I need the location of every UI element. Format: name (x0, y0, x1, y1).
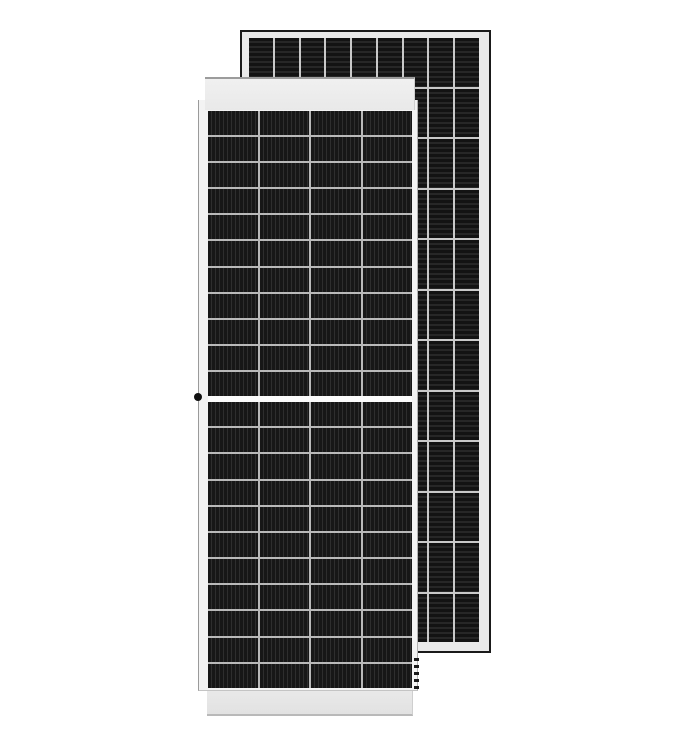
solar-cell (363, 268, 413, 292)
solar-cell (363, 664, 413, 688)
product-image-canvas (0, 0, 684, 748)
solar-cell (311, 215, 361, 239)
solar-cell (311, 402, 361, 426)
solar-cell (363, 215, 413, 239)
grounding-hole-dot (194, 393, 202, 401)
solar-cell (208, 346, 258, 370)
solar-cell (260, 402, 310, 426)
solar-cell (208, 638, 258, 662)
solar-cell (429, 442, 453, 491)
solar-cell (260, 163, 310, 187)
solar-cell (260, 585, 310, 609)
solar-cell (455, 341, 479, 390)
solar-cell (363, 507, 413, 531)
solar-cell (208, 163, 258, 187)
solar-cell (208, 402, 258, 426)
solar-cell (363, 372, 413, 396)
solar-cell (455, 442, 479, 491)
solar-cell (260, 372, 310, 396)
solar-cell (311, 481, 361, 505)
solar-cell (455, 543, 479, 592)
solar-cell (363, 428, 413, 452)
solar-cell (208, 320, 258, 344)
solar-cell (363, 241, 413, 265)
solar-cell (363, 111, 413, 135)
solar-cell (208, 507, 258, 531)
solar-cell (260, 507, 310, 531)
solar-cell (208, 585, 258, 609)
solar-cell (311, 163, 361, 187)
solar-cell (363, 163, 413, 187)
solar-cell (455, 190, 479, 239)
solar-cell (311, 454, 361, 478)
solar-cell (311, 559, 361, 583)
solar-cell (429, 89, 453, 138)
solar-cell (429, 240, 453, 289)
solar-cell (363, 294, 413, 318)
solar-cell (311, 664, 361, 688)
solar-cell (208, 268, 258, 292)
solar-cell (208, 481, 258, 505)
solar-cell (455, 38, 479, 87)
solar-cell (311, 320, 361, 344)
solar-cell (455, 594, 479, 643)
solar-cell (260, 268, 310, 292)
solar-cell (363, 585, 413, 609)
solar-cell (260, 664, 310, 688)
solar-cell (363, 611, 413, 635)
solar-cell (208, 111, 258, 135)
solar-cell (208, 215, 258, 239)
solar-cell (429, 291, 453, 340)
solar-cell (260, 428, 310, 452)
solar-cell (311, 428, 361, 452)
solar-cell (429, 38, 453, 87)
solar-cell (208, 533, 258, 557)
solar-cell (363, 402, 413, 426)
solar-cell (208, 611, 258, 635)
solar-cell (311, 372, 361, 396)
solar-cell (311, 611, 361, 635)
solar-cell (311, 294, 361, 318)
front-panel-bottom-cap (207, 691, 413, 716)
solar-cell (260, 111, 310, 135)
solar-cell (363, 481, 413, 505)
solar-cell (208, 559, 258, 583)
solar-cell (260, 611, 310, 635)
solar-cell (363, 346, 413, 370)
solar-cell (208, 137, 258, 161)
solar-cell (311, 137, 361, 161)
solar-cell (260, 241, 310, 265)
solar-cell (260, 346, 310, 370)
solar-cell (260, 189, 310, 213)
solar-cell (260, 215, 310, 239)
solar-cell (260, 481, 310, 505)
solar-cell (363, 320, 413, 344)
solar-cell (260, 320, 310, 344)
solar-cell (429, 594, 453, 643)
solar-cell (429, 190, 453, 239)
solar-cell (311, 241, 361, 265)
solar-cell (363, 454, 413, 478)
solar-cell (429, 392, 453, 441)
front-panel-top-cap (205, 77, 415, 110)
solar-cell (311, 585, 361, 609)
solar-cell (311, 507, 361, 531)
solar-cell (208, 372, 258, 396)
solar-cell (455, 139, 479, 188)
solar-cell (429, 543, 453, 592)
solar-cell (260, 559, 310, 583)
solar-cell (260, 294, 310, 318)
solar-cell (363, 137, 413, 161)
solar-cell (429, 341, 453, 390)
solar-cell (311, 346, 361, 370)
solar-cell (363, 189, 413, 213)
front-cell-grid-lower (208, 402, 412, 688)
solar-cell (429, 493, 453, 542)
frame-mounting-dashes (414, 658, 419, 692)
solar-cell (311, 533, 361, 557)
solar-cell (260, 454, 310, 478)
solar-cell (311, 638, 361, 662)
solar-cell (455, 493, 479, 542)
solar-cell (455, 392, 479, 441)
solar-cell (208, 294, 258, 318)
solar-cell (311, 189, 361, 213)
solar-cell (311, 268, 361, 292)
solar-cell (208, 664, 258, 688)
solar-cell (208, 241, 258, 265)
front-cell-grid-upper (208, 111, 412, 396)
solar-cell (260, 533, 310, 557)
solar-cell (311, 111, 361, 135)
solar-cell (363, 533, 413, 557)
front-panel-cell-area (208, 111, 412, 688)
solar-cell (455, 240, 479, 289)
solar-cell (208, 454, 258, 478)
solar-cell (363, 638, 413, 662)
solar-cell (260, 137, 310, 161)
solar-cell (455, 291, 479, 340)
solar-cell (208, 428, 258, 452)
solar-cell (208, 189, 258, 213)
solar-cell (455, 89, 479, 138)
solar-cell (260, 638, 310, 662)
solar-cell (429, 139, 453, 188)
solar-cell (363, 559, 413, 583)
front-solar-panel-body (198, 100, 418, 691)
